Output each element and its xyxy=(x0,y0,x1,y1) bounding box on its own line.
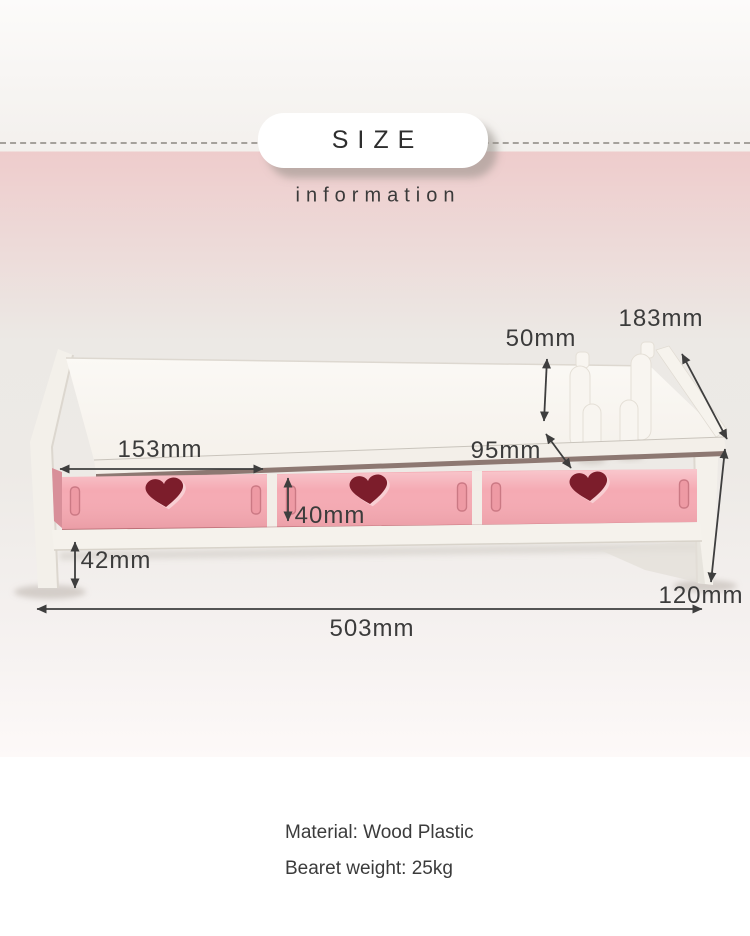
dim-label-40: 40mm xyxy=(295,502,366,530)
bracket-tab-icon xyxy=(576,352,589,368)
drawer-handle xyxy=(71,487,80,515)
dim-label-42: 42mm xyxy=(81,547,152,575)
drawer-handle xyxy=(680,480,689,508)
dim-label-503: 503mm xyxy=(329,615,414,643)
page: SIZE information xyxy=(0,0,750,936)
dim-label-50: 50mm xyxy=(506,325,577,353)
drawer-row xyxy=(62,469,697,530)
dim-label-95: 95mm xyxy=(471,437,542,465)
drawer-handle xyxy=(492,483,501,511)
size-badge-label: SIZE xyxy=(323,126,424,155)
dim-label-183: 183mm xyxy=(618,305,703,333)
product-photo-section: SIZE information xyxy=(0,0,750,757)
size-badge: SIZE xyxy=(258,113,488,168)
spec-weight: Bearet weight: 25kg xyxy=(285,858,453,880)
drawer-handle xyxy=(252,486,261,514)
dim-label-120: 120mm xyxy=(658,582,743,610)
spec-material: Material: Wood Plastic xyxy=(285,822,474,844)
dim-label-153: 153mm xyxy=(117,436,202,464)
drawer-handle xyxy=(458,483,467,511)
